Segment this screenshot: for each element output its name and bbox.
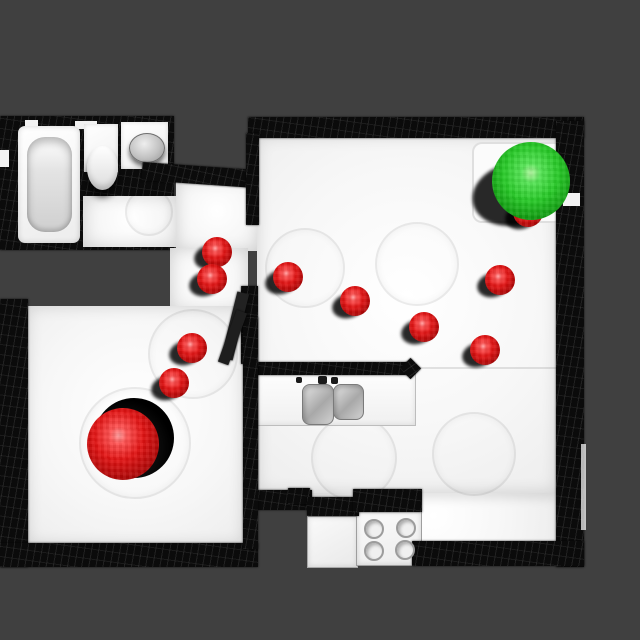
waypoint-sphere	[177, 333, 207, 363]
start-sphere	[87, 408, 159, 480]
waypoint-sphere	[197, 264, 227, 294]
scene-canvas	[0, 0, 640, 640]
waypoint-sphere	[485, 265, 515, 295]
waypoint-sphere	[409, 312, 439, 342]
goal-sphere	[492, 142, 570, 220]
waypoint-sphere	[202, 237, 232, 267]
waypoint-sphere	[273, 262, 303, 292]
waypoint-sphere	[159, 368, 189, 398]
waypoint-sphere	[340, 286, 370, 316]
markers-layer	[0, 0, 640, 640]
waypoint-sphere	[470, 335, 500, 365]
